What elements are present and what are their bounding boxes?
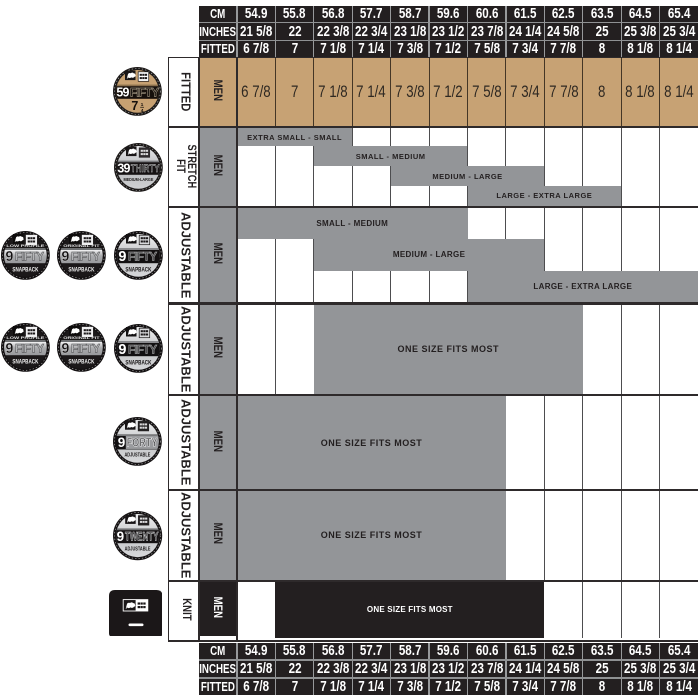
svg-text:ADJUSTABLE: ADJUSTABLE <box>124 452 150 459</box>
svg-text:9: 9 <box>61 249 69 265</box>
svg-text:FIFTY: FIFTY <box>130 85 159 99</box>
svg-text:FIFTY: FIFTY <box>70 342 99 356</box>
svg-text:4: 4 <box>141 108 144 114</box>
svg-text:SNAPBACK: SNAPBACK <box>125 360 151 367</box>
svg-text:TWENTY: TWENTY <box>125 531 159 544</box>
svg-text:ORIGINAL FIT: ORIGINAL FIT <box>63 243 100 248</box>
svg-text:9: 9 <box>61 341 69 357</box>
svg-text:7: 7 <box>131 99 138 113</box>
svg-text:MEDIUM-LARGE: MEDIUM-LARGE <box>123 177 153 183</box>
svg-text:9: 9 <box>5 341 13 357</box>
svg-text:LOW PROFILE: LOW PROFILE <box>6 243 44 248</box>
svg-text:SNAPBACK: SNAPBACK <box>68 359 94 366</box>
svg-text:THIRTY: THIRTY <box>130 163 159 176</box>
svg-text:39: 39 <box>117 162 130 176</box>
svg-text:SNAPBACK: SNAPBACK <box>125 267 151 274</box>
svg-text:ADJUSTABLE: ADJUSTABLE <box>124 546 150 553</box>
svg-text:9: 9 <box>118 435 126 450</box>
svg-text:9: 9 <box>116 529 124 544</box>
svg-text:FIFTY: FIFTY <box>127 342 156 356</box>
svg-text:FIFTY: FIFTY <box>15 342 44 356</box>
svg-text:FIFTY: FIFTY <box>15 249 44 263</box>
svg-text:9: 9 <box>118 249 126 265</box>
svg-text:SNAPBACK: SNAPBACK <box>68 267 94 274</box>
svg-text:SNAPBACK: SNAPBACK <box>12 359 38 366</box>
svg-text:FIFTY: FIFTY <box>127 250 156 264</box>
svg-text:ORIGINAL FIT: ORIGINAL FIT <box>63 336 100 341</box>
svg-text:FORTY: FORTY <box>127 438 158 450</box>
svg-text:9: 9 <box>5 249 13 265</box>
svg-text:FIFTY: FIFTY <box>70 249 99 263</box>
svg-text:9: 9 <box>118 342 126 358</box>
svg-text:LOW PROFILE: LOW PROFILE <box>6 336 44 341</box>
svg-text:SNAPBACK: SNAPBACK <box>12 267 38 274</box>
svg-text:59: 59 <box>116 85 129 99</box>
